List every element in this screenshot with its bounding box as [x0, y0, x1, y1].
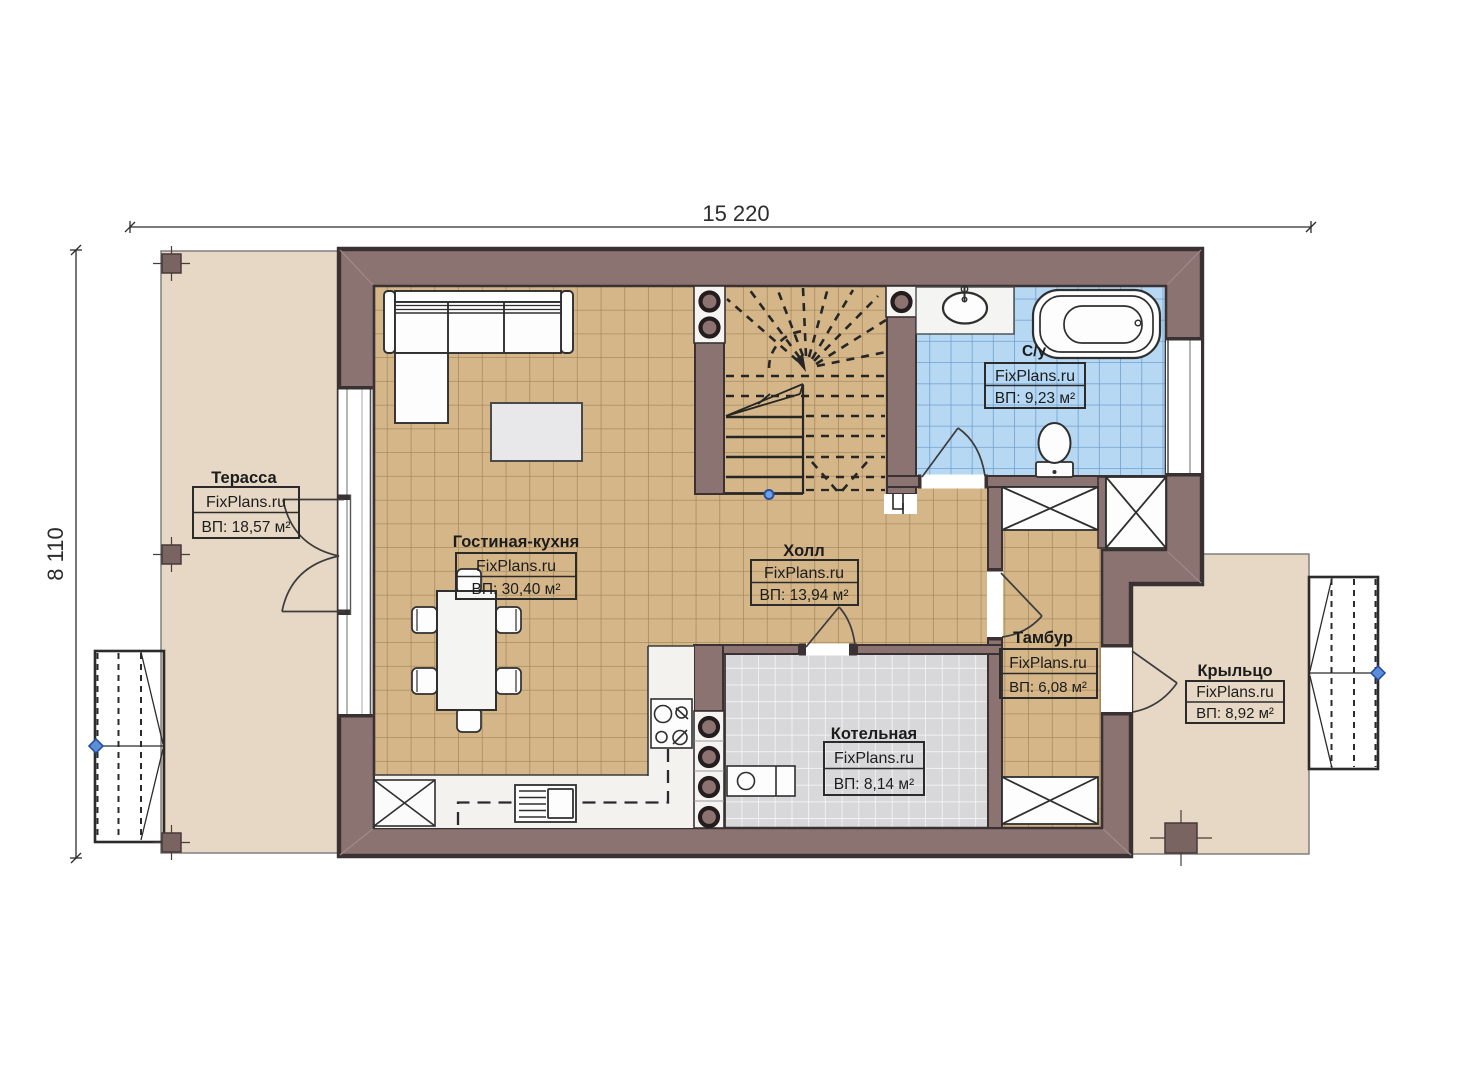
- svg-text:ВП: 6,08 м²: ВП: 6,08 м²: [1009, 679, 1087, 696]
- svg-text:FixPlans.ru: FixPlans.ru: [206, 494, 286, 511]
- svg-text:15 220: 15 220: [702, 201, 769, 226]
- svg-text:FixPlans.ru: FixPlans.ru: [764, 565, 844, 582]
- svg-text:FixPlans.ru: FixPlans.ru: [834, 750, 914, 767]
- svg-text:8 110: 8 110: [43, 527, 68, 580]
- svg-text:ВП: 18,57 м²: ВП: 18,57 м²: [201, 519, 290, 536]
- svg-text:FixPlans.ru: FixPlans.ru: [995, 368, 1075, 385]
- svg-text:ВП: 9,23 м²: ВП: 9,23 м²: [995, 390, 1075, 407]
- svg-text:ВП: 30,40 м²: ВП: 30,40 м²: [471, 581, 560, 598]
- svg-text:Котельная: Котельная: [831, 725, 917, 743]
- svg-text:С/у: С/у: [1022, 343, 1047, 360]
- svg-text:Гостиная-кухня: Гостиная-кухня: [453, 533, 579, 551]
- svg-text:FixPlans.ru: FixPlans.ru: [1009, 655, 1087, 672]
- svg-text:Холл: Холл: [783, 542, 824, 560]
- svg-text:FixPlans.ru: FixPlans.ru: [1196, 684, 1274, 701]
- svg-text:FixPlans.ru: FixPlans.ru: [476, 558, 556, 575]
- svg-text:ВП: 8,92 м²: ВП: 8,92 м²: [1196, 705, 1274, 722]
- svg-text:Крыльцо: Крыльцо: [1197, 662, 1272, 680]
- svg-text:ВП: 8,14 м²: ВП: 8,14 м²: [834, 776, 914, 793]
- svg-text:Тамбур: Тамбур: [1013, 629, 1073, 647]
- svg-text:ВП: 13,94 м²: ВП: 13,94 м²: [759, 587, 848, 604]
- svg-text:Терасса: Терасса: [211, 469, 277, 487]
